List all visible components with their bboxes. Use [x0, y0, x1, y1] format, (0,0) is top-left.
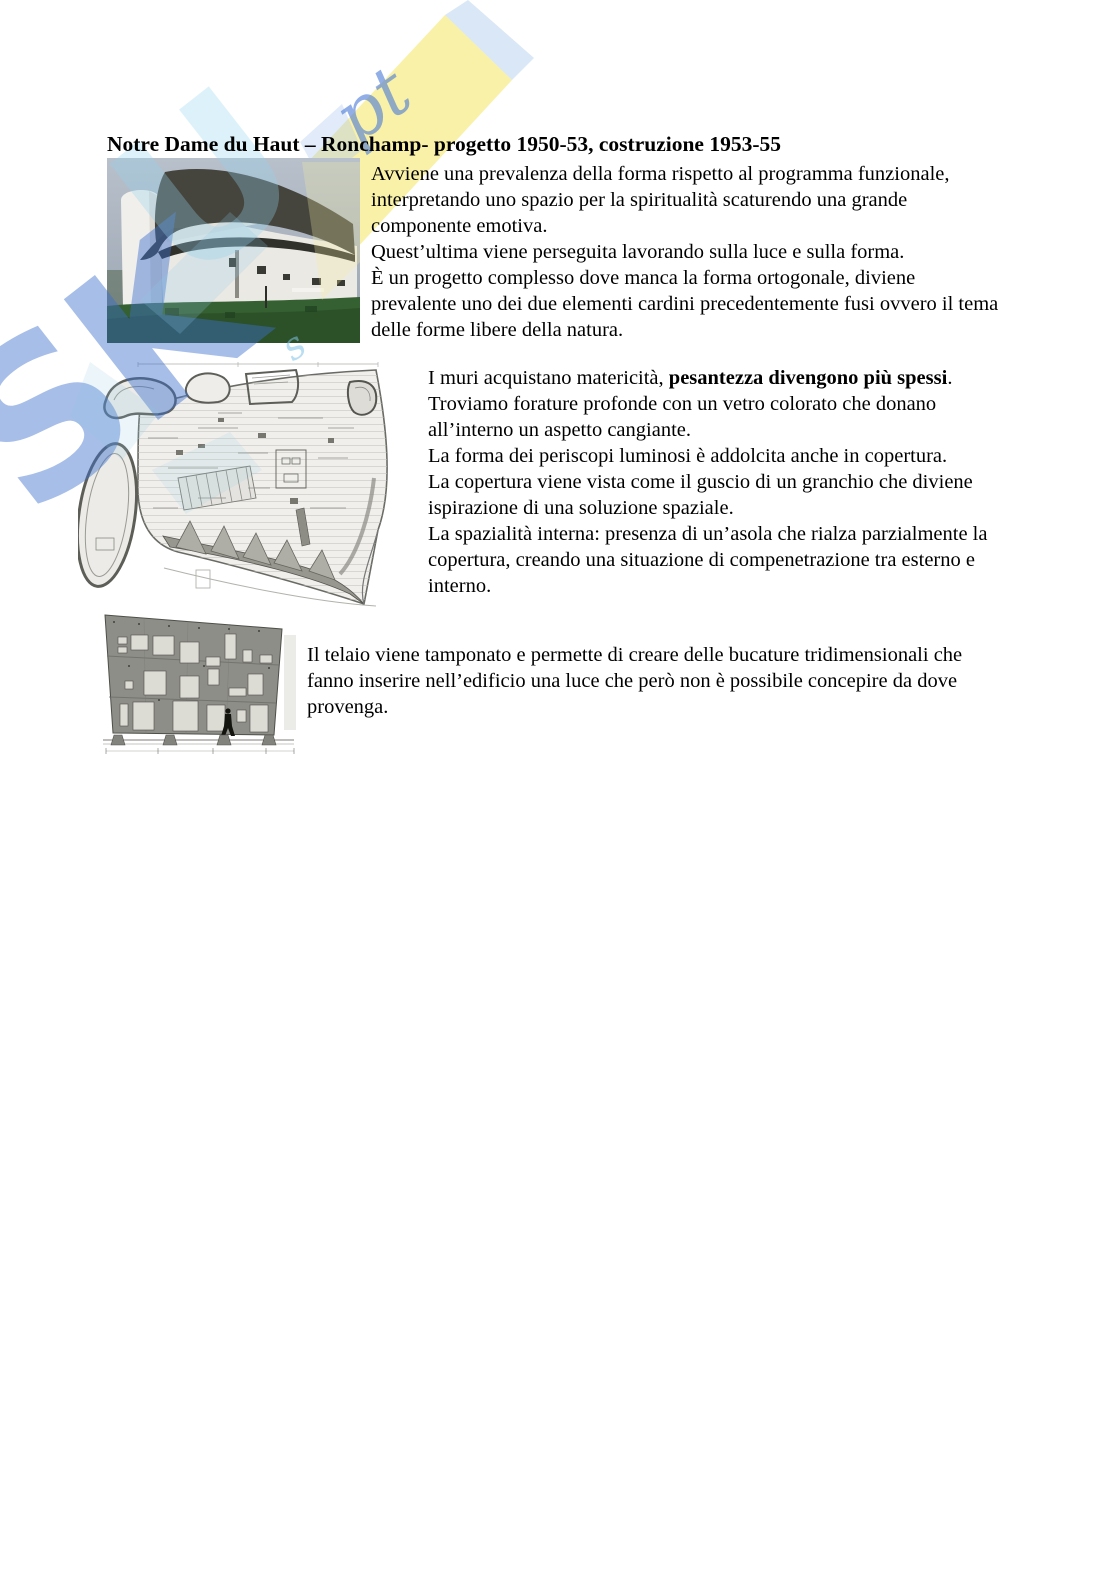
text-line: ispirazione di una soluzione spaziale. — [428, 495, 734, 521]
floor-plan-drawing — [78, 358, 406, 608]
text-line: interpretando uno spazio per la spiritua… — [371, 187, 907, 213]
text-line: prevalente uno dei due elementi cardini … — [371, 291, 998, 317]
document-page: pt — [0, 0, 1116, 1579]
page-title: Notre Dame du Haut – Ronchamp- progetto … — [107, 132, 781, 157]
text-line: all’interno un aspetto cangiante. — [428, 417, 691, 443]
text-segment: I muri acquistano matericità, — [428, 367, 669, 389]
text-line: Avviene una prevalenza della forma rispe… — [371, 161, 950, 187]
text-line: Quest’ultima viene perseguita lavorando … — [371, 239, 904, 265]
text-line: fanno inserire nell’edificio una luce ch… — [307, 668, 957, 694]
text-line: La copertura viene vista come il guscio … — [428, 469, 973, 495]
text-line: La forma dei periscopi luminosi è addolc… — [428, 443, 947, 469]
text-line: provenga. — [307, 694, 388, 720]
text-line: componente emotiva. — [371, 213, 547, 239]
chapel-photo — [107, 158, 360, 343]
text-line: interno. — [428, 573, 491, 599]
text-segment: . — [947, 367, 952, 389]
text-line: Il telaio viene tamponato e permette di … — [307, 642, 962, 668]
text-line: delle forme libere della natura. — [371, 317, 623, 343]
text-line: La spazialità interna: presenza di un’as… — [428, 521, 987, 547]
text-line: I muri acquistano matericità, pesantezza… — [428, 365, 952, 391]
bold-text-segment: pesantezza divengono più spessi — [669, 367, 948, 389]
text-line: È un progetto complesso dove manca la fo… — [371, 265, 915, 291]
text-line: Troviamo forature profonde con un vetro … — [428, 391, 936, 417]
section-elevation-drawing — [98, 607, 303, 755]
text-line: copertura, creando una situazione di com… — [428, 547, 975, 573]
